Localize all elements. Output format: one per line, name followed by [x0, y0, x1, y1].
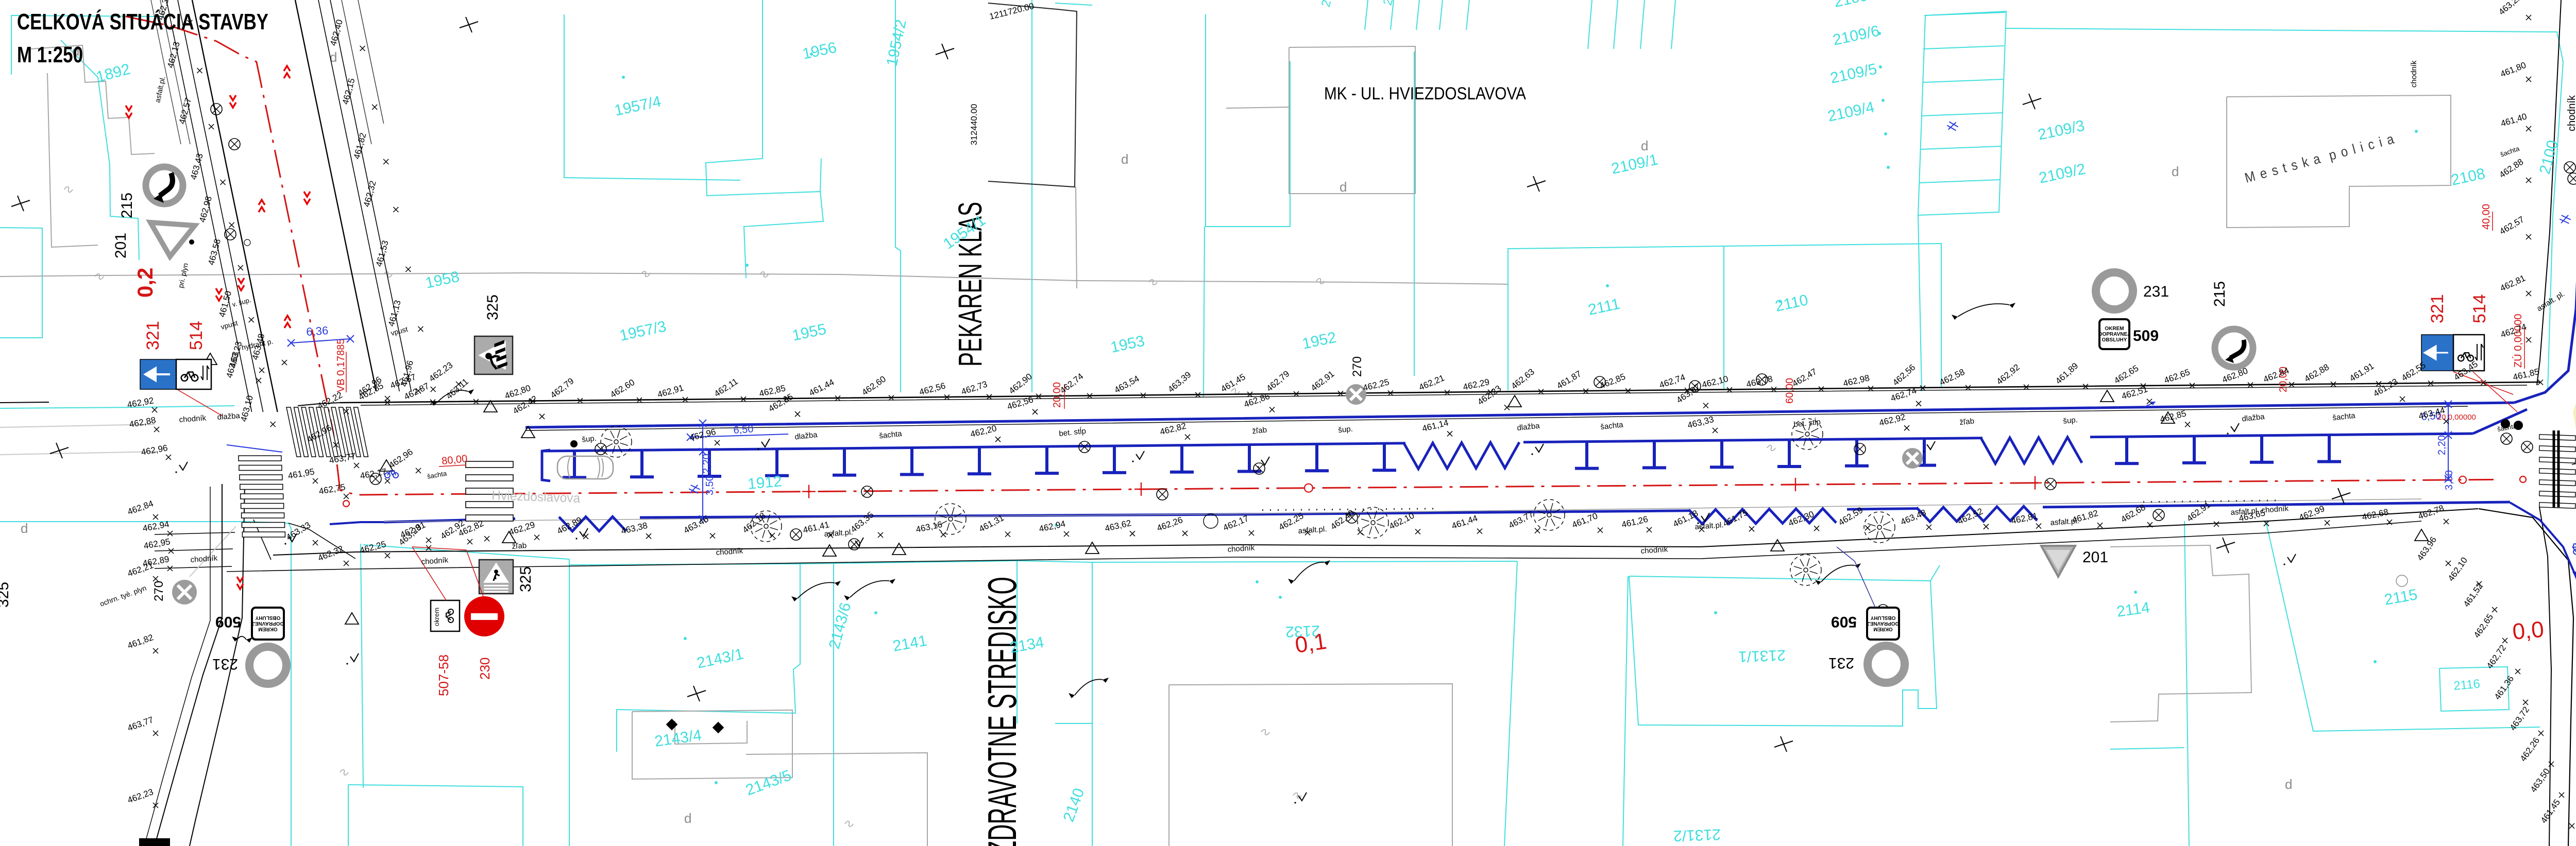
svg-text:OKREM: OKREM	[1873, 626, 1892, 632]
svg-text:215: 215	[118, 193, 135, 218]
svg-text:215: 215	[2211, 281, 2228, 307]
svg-text:507-58: 507-58	[436, 654, 451, 696]
svg-text:OKREM: OKREM	[258, 626, 277, 632]
svg-text:d: d	[1340, 179, 1347, 195]
svg-text:509: 509	[2133, 327, 2159, 344]
svg-text:ZÚ 0,00000: ZÚ 0,00000	[2512, 314, 2524, 368]
svg-text:201: 201	[2082, 549, 2108, 566]
svg-text:321: 321	[143, 321, 163, 350]
svg-text:M 1:250: M 1:250	[17, 42, 83, 67]
svg-text:325: 325	[517, 566, 534, 592]
svg-text:2131/2: 2131/2	[1673, 825, 1721, 844]
svg-text:d: d	[330, 49, 337, 65]
svg-text:0,2: 0,2	[133, 268, 157, 298]
svg-text:d: d	[1121, 151, 1128, 167]
svg-text:0,1: 0,1	[1294, 629, 1328, 658]
svg-text:325: 325	[0, 582, 12, 608]
svg-text:231: 231	[1828, 654, 1854, 671]
svg-text:d: d	[684, 810, 691, 826]
svg-text:OKREM: OKREM	[2105, 326, 2124, 332]
svg-text:d: d	[1641, 138, 1648, 153]
svg-text:6,50: 6,50	[733, 423, 754, 436]
svg-text:dlažba: dlažba	[217, 411, 241, 422]
svg-text:žľab: žľab	[1959, 417, 1975, 427]
svg-text:201: 201	[112, 233, 129, 258]
svg-text:OBSLUHY: OBSLUHY	[255, 615, 280, 620]
svg-text:d: d	[2172, 164, 2179, 179]
svg-text:CELKOVÁ SITUÁCIA STAVBY: CELKOVÁ SITUÁCIA STAVBY	[17, 9, 268, 34]
svg-text:žľab: žľab	[1252, 425, 1267, 436]
svg-text:6,36: 6,36	[306, 324, 329, 338]
svg-text:šup.: šup.	[1338, 424, 1353, 435]
svg-text:270: 270	[152, 581, 166, 601]
svg-text:3,50: 3,50	[2444, 470, 2455, 490]
svg-text:d: d	[21, 521, 28, 536]
svg-text:270: 270	[1350, 356, 1364, 377]
svg-text:chodník: chodník	[2566, 95, 2576, 131]
svg-text:509: 509	[1831, 613, 1857, 630]
svg-text:0,0: 0,0	[2512, 617, 2545, 645]
svg-text:325: 325	[484, 295, 501, 320]
svg-text:okrem: okrem	[433, 608, 440, 626]
svg-text:509: 509	[215, 613, 241, 630]
svg-text:OBSLUHY: OBSLUHY	[1870, 615, 1895, 620]
svg-text:514: 514	[2470, 294, 2489, 323]
svg-text:2,20: 2,20	[2436, 435, 2448, 455]
svg-text:šup.: šup.	[582, 434, 597, 444]
svg-text:230: 230	[477, 658, 493, 680]
svg-text:ZDRAVOTNE STREDISKO: ZDRAVOTNE STREDISKO	[979, 577, 1025, 846]
svg-text:514: 514	[187, 321, 206, 350]
svg-text:40,00: 40,00	[2481, 204, 2492, 230]
svg-text:1912: 1912	[747, 473, 783, 493]
svg-text:3,50: 3,50	[704, 475, 716, 495]
svg-text:DOPRAVNEJ: DOPRAVNEJ	[2098, 332, 2130, 337]
svg-text:231: 231	[212, 655, 238, 672]
svg-text:OBSLUHY: OBSLUHY	[2102, 337, 2127, 343]
svg-text:321: 321	[2428, 294, 2447, 323]
svg-text:2131/1: 2131/1	[1738, 646, 1786, 665]
svg-text:d: d	[2285, 776, 2292, 792]
svg-text:šup.: šup.	[2063, 416, 2078, 426]
svg-text:2116: 2116	[2453, 677, 2481, 693]
svg-text:VB 0,17885: VB 0,17885	[335, 338, 347, 392]
svg-text:DOPRAVNEJ: DOPRAVNEJ	[1867, 620, 1899, 626]
svg-text:chodník: chodník	[2410, 60, 2418, 88]
svg-text:MK - UL. HVIEZDOSLAVOVA: MK - UL. HVIEZDOSLAVOVA	[1324, 84, 1526, 103]
svg-text:žľab: žľab	[512, 541, 527, 551]
svg-text:312440.00: 312440.00	[969, 104, 979, 145]
svg-text:DOPRAVNEJ: DOPRAVNEJ	[252, 620, 284, 626]
svg-text:2,20: 2,20	[701, 454, 713, 474]
svg-text:231: 231	[2143, 283, 2169, 300]
